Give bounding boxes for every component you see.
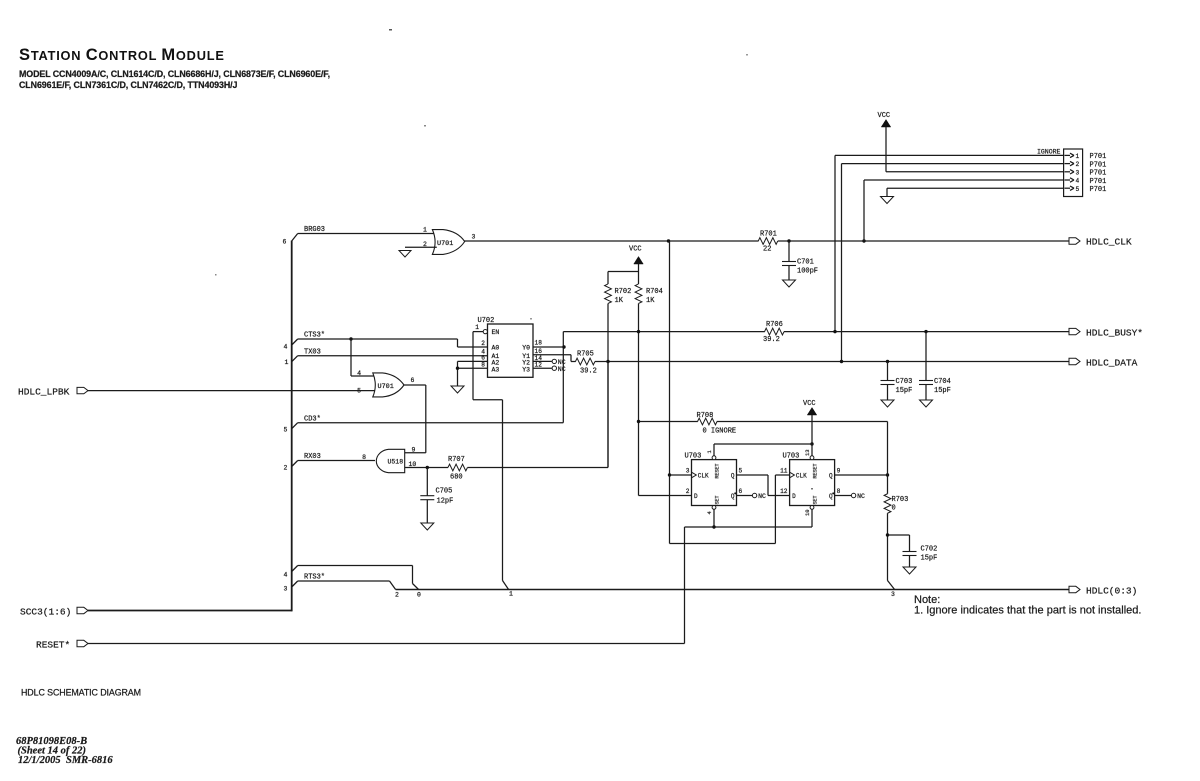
svg-text:CLK: CLK <box>698 473 709 480</box>
svg-text:2: 2 <box>481 340 485 347</box>
svg-text:VCC: VCC <box>878 112 891 120</box>
svg-text:A0: A0 <box>492 345 500 352</box>
svg-text:5: 5 <box>357 388 361 395</box>
svg-text:D: D <box>694 493 698 500</box>
svg-text:0: 0 <box>892 505 896 513</box>
svg-text:C705: C705 <box>436 488 453 496</box>
svg-text:39.2: 39.2 <box>763 336 780 344</box>
svg-text:0 IGNORE: 0 IGNORE <box>703 428 737 436</box>
svg-text:Q: Q <box>731 493 735 500</box>
svg-text:CLK: CLK <box>796 473 807 480</box>
svg-text:HDLC(0:3): HDLC(0:3) <box>1086 585 1137 596</box>
svg-text:R702: R702 <box>615 288 632 296</box>
svg-text:R707: R707 <box>448 456 465 464</box>
svg-text:C703: C703 <box>896 378 913 386</box>
svg-text:0: 0 <box>417 592 421 599</box>
svg-text:4: 4 <box>357 370 361 377</box>
svg-text:U703: U703 <box>783 453 800 461</box>
svg-text:U701: U701 <box>378 383 394 391</box>
svg-text:SMR-6816: SMR-6816 <box>66 755 113 766</box>
svg-text:U702: U702 <box>478 317 495 325</box>
svg-text:STATION CONTROL MODULE: STATION CONTROL MODULE <box>19 46 225 64</box>
svg-text:39.2: 39.2 <box>580 368 597 376</box>
svg-text:CLN6961E/F, CLN7361C/D, CLN746: CLN6961E/F, CLN7361C/D, CLN7462C/D, TTN4… <box>19 80 238 90</box>
svg-text:6: 6 <box>283 239 287 246</box>
svg-text:8: 8 <box>362 454 366 461</box>
svg-text:10: 10 <box>409 461 417 468</box>
svg-text:P701: P701 <box>1090 186 1107 194</box>
svg-text:2: 2 <box>1076 161 1080 168</box>
svg-text:Q: Q <box>731 473 735 480</box>
svg-text:12: 12 <box>535 362 543 369</box>
svg-text:1: 1 <box>1076 153 1080 160</box>
svg-text:RESET: RESET <box>813 463 819 478</box>
svg-text:15pF: 15pF <box>921 555 938 563</box>
svg-text:R705: R705 <box>577 351 594 359</box>
svg-text:1K: 1K <box>646 297 655 305</box>
svg-text:P701: P701 <box>1090 170 1107 178</box>
svg-text:U518: U518 <box>388 459 404 466</box>
svg-text:3: 3 <box>284 586 288 593</box>
svg-text:U703: U703 <box>685 453 702 461</box>
svg-text:2: 2 <box>686 488 690 495</box>
svg-text:HDLC_LPBK: HDLC_LPBK <box>18 386 70 397</box>
svg-text:3: 3 <box>686 468 690 475</box>
svg-text:C701: C701 <box>797 259 814 267</box>
svg-text:MODEL CCN4009A/C, CLN1614C/D,: MODEL CCN4009A/C, CLN1614C/D, CLN6686H/J… <box>19 69 330 79</box>
svg-text:HDLC_BUSY*: HDLC_BUSY* <box>1086 327 1143 338</box>
svg-text:R701: R701 <box>760 231 777 239</box>
svg-text:R706: R706 <box>766 321 783 329</box>
svg-text:D: D <box>792 493 796 500</box>
svg-text:R703: R703 <box>892 496 909 504</box>
svg-text:BRG03: BRG03 <box>304 226 325 234</box>
svg-text:9: 9 <box>837 468 841 475</box>
svg-text:HDLC_DATA: HDLC_DATA <box>1086 357 1138 368</box>
svg-text:RESET*: RESET* <box>36 639 70 650</box>
svg-text:CTS3*: CTS3* <box>304 332 325 340</box>
svg-text:Y3: Y3 <box>522 366 530 373</box>
svg-text:6: 6 <box>739 488 743 495</box>
svg-text:22: 22 <box>763 246 771 254</box>
svg-text:RESET: RESET <box>715 463 721 478</box>
svg-text:10: 10 <box>804 509 811 516</box>
svg-text:12/1/2005: 12/1/2005 <box>18 755 61 766</box>
svg-text:18: 18 <box>535 340 543 347</box>
svg-text:3: 3 <box>472 234 476 241</box>
svg-text:15pF: 15pF <box>896 387 913 395</box>
svg-text:NC: NC <box>558 366 566 373</box>
svg-text:RTS3*: RTS3* <box>304 574 325 582</box>
svg-text:EN: EN <box>492 329 500 336</box>
svg-text:Y0: Y0 <box>522 345 530 352</box>
svg-text:11: 11 <box>780 468 788 475</box>
svg-text:NC: NC <box>857 493 865 500</box>
svg-text:R704: R704 <box>646 288 663 296</box>
svg-text:5: 5 <box>284 427 288 434</box>
svg-text:R708: R708 <box>697 412 714 420</box>
svg-text:P701: P701 <box>1090 178 1107 186</box>
svg-text:IGNORE: IGNORE <box>1037 149 1061 156</box>
svg-text:1: 1 <box>509 591 513 598</box>
svg-text:12: 12 <box>780 488 788 495</box>
svg-text:RX03: RX03 <box>304 453 321 461</box>
svg-text:4: 4 <box>1076 178 1080 185</box>
svg-text:1: 1 <box>475 324 479 331</box>
svg-text:C702: C702 <box>921 546 938 554</box>
svg-text:12pF: 12pF <box>437 498 454 506</box>
svg-text:SCC3(1:6): SCC3(1:6) <box>20 606 71 617</box>
svg-text:8: 8 <box>837 488 841 495</box>
svg-text:2: 2 <box>284 465 288 472</box>
svg-text:VCC: VCC <box>629 246 642 254</box>
svg-text:1: 1 <box>285 359 289 366</box>
svg-text:HDLC_CLK: HDLC_CLK <box>1086 236 1132 247</box>
svg-text:Q: Q <box>829 473 833 480</box>
svg-text:680: 680 <box>450 474 463 482</box>
svg-text:5: 5 <box>739 468 743 475</box>
svg-text:U701: U701 <box>437 240 453 248</box>
svg-text:1K: 1K <box>615 297 624 305</box>
svg-text:P701: P701 <box>1090 161 1107 169</box>
svg-text:3: 3 <box>891 591 895 598</box>
svg-text:3: 3 <box>1076 169 1080 176</box>
svg-text:5: 5 <box>1076 186 1080 193</box>
svg-text:4: 4 <box>284 572 288 579</box>
svg-text:1. Ignore indicates that the p: 1. Ignore indicates that the part is not… <box>914 605 1141 617</box>
svg-text:HDLC SCHEMATIC DIAGRAM: HDLC SCHEMATIC DIAGRAM <box>21 688 141 698</box>
svg-text:SET: SET <box>813 495 819 504</box>
svg-text:8: 8 <box>481 361 485 368</box>
svg-text:6: 6 <box>411 377 415 384</box>
svg-text:VCC: VCC <box>803 400 816 408</box>
svg-text:SET: SET <box>715 495 721 504</box>
svg-text:A3: A3 <box>492 366 500 373</box>
svg-text:2: 2 <box>395 592 399 599</box>
svg-text:1: 1 <box>423 227 427 234</box>
svg-text:13: 13 <box>804 449 811 456</box>
svg-text:C704: C704 <box>934 378 951 386</box>
svg-text:15pF: 15pF <box>934 387 951 395</box>
svg-text:NC: NC <box>758 493 766 500</box>
svg-text:P701: P701 <box>1090 153 1107 161</box>
svg-text:100pF: 100pF <box>797 268 818 276</box>
svg-text:4: 4 <box>284 344 288 351</box>
svg-text:Q: Q <box>829 493 833 500</box>
